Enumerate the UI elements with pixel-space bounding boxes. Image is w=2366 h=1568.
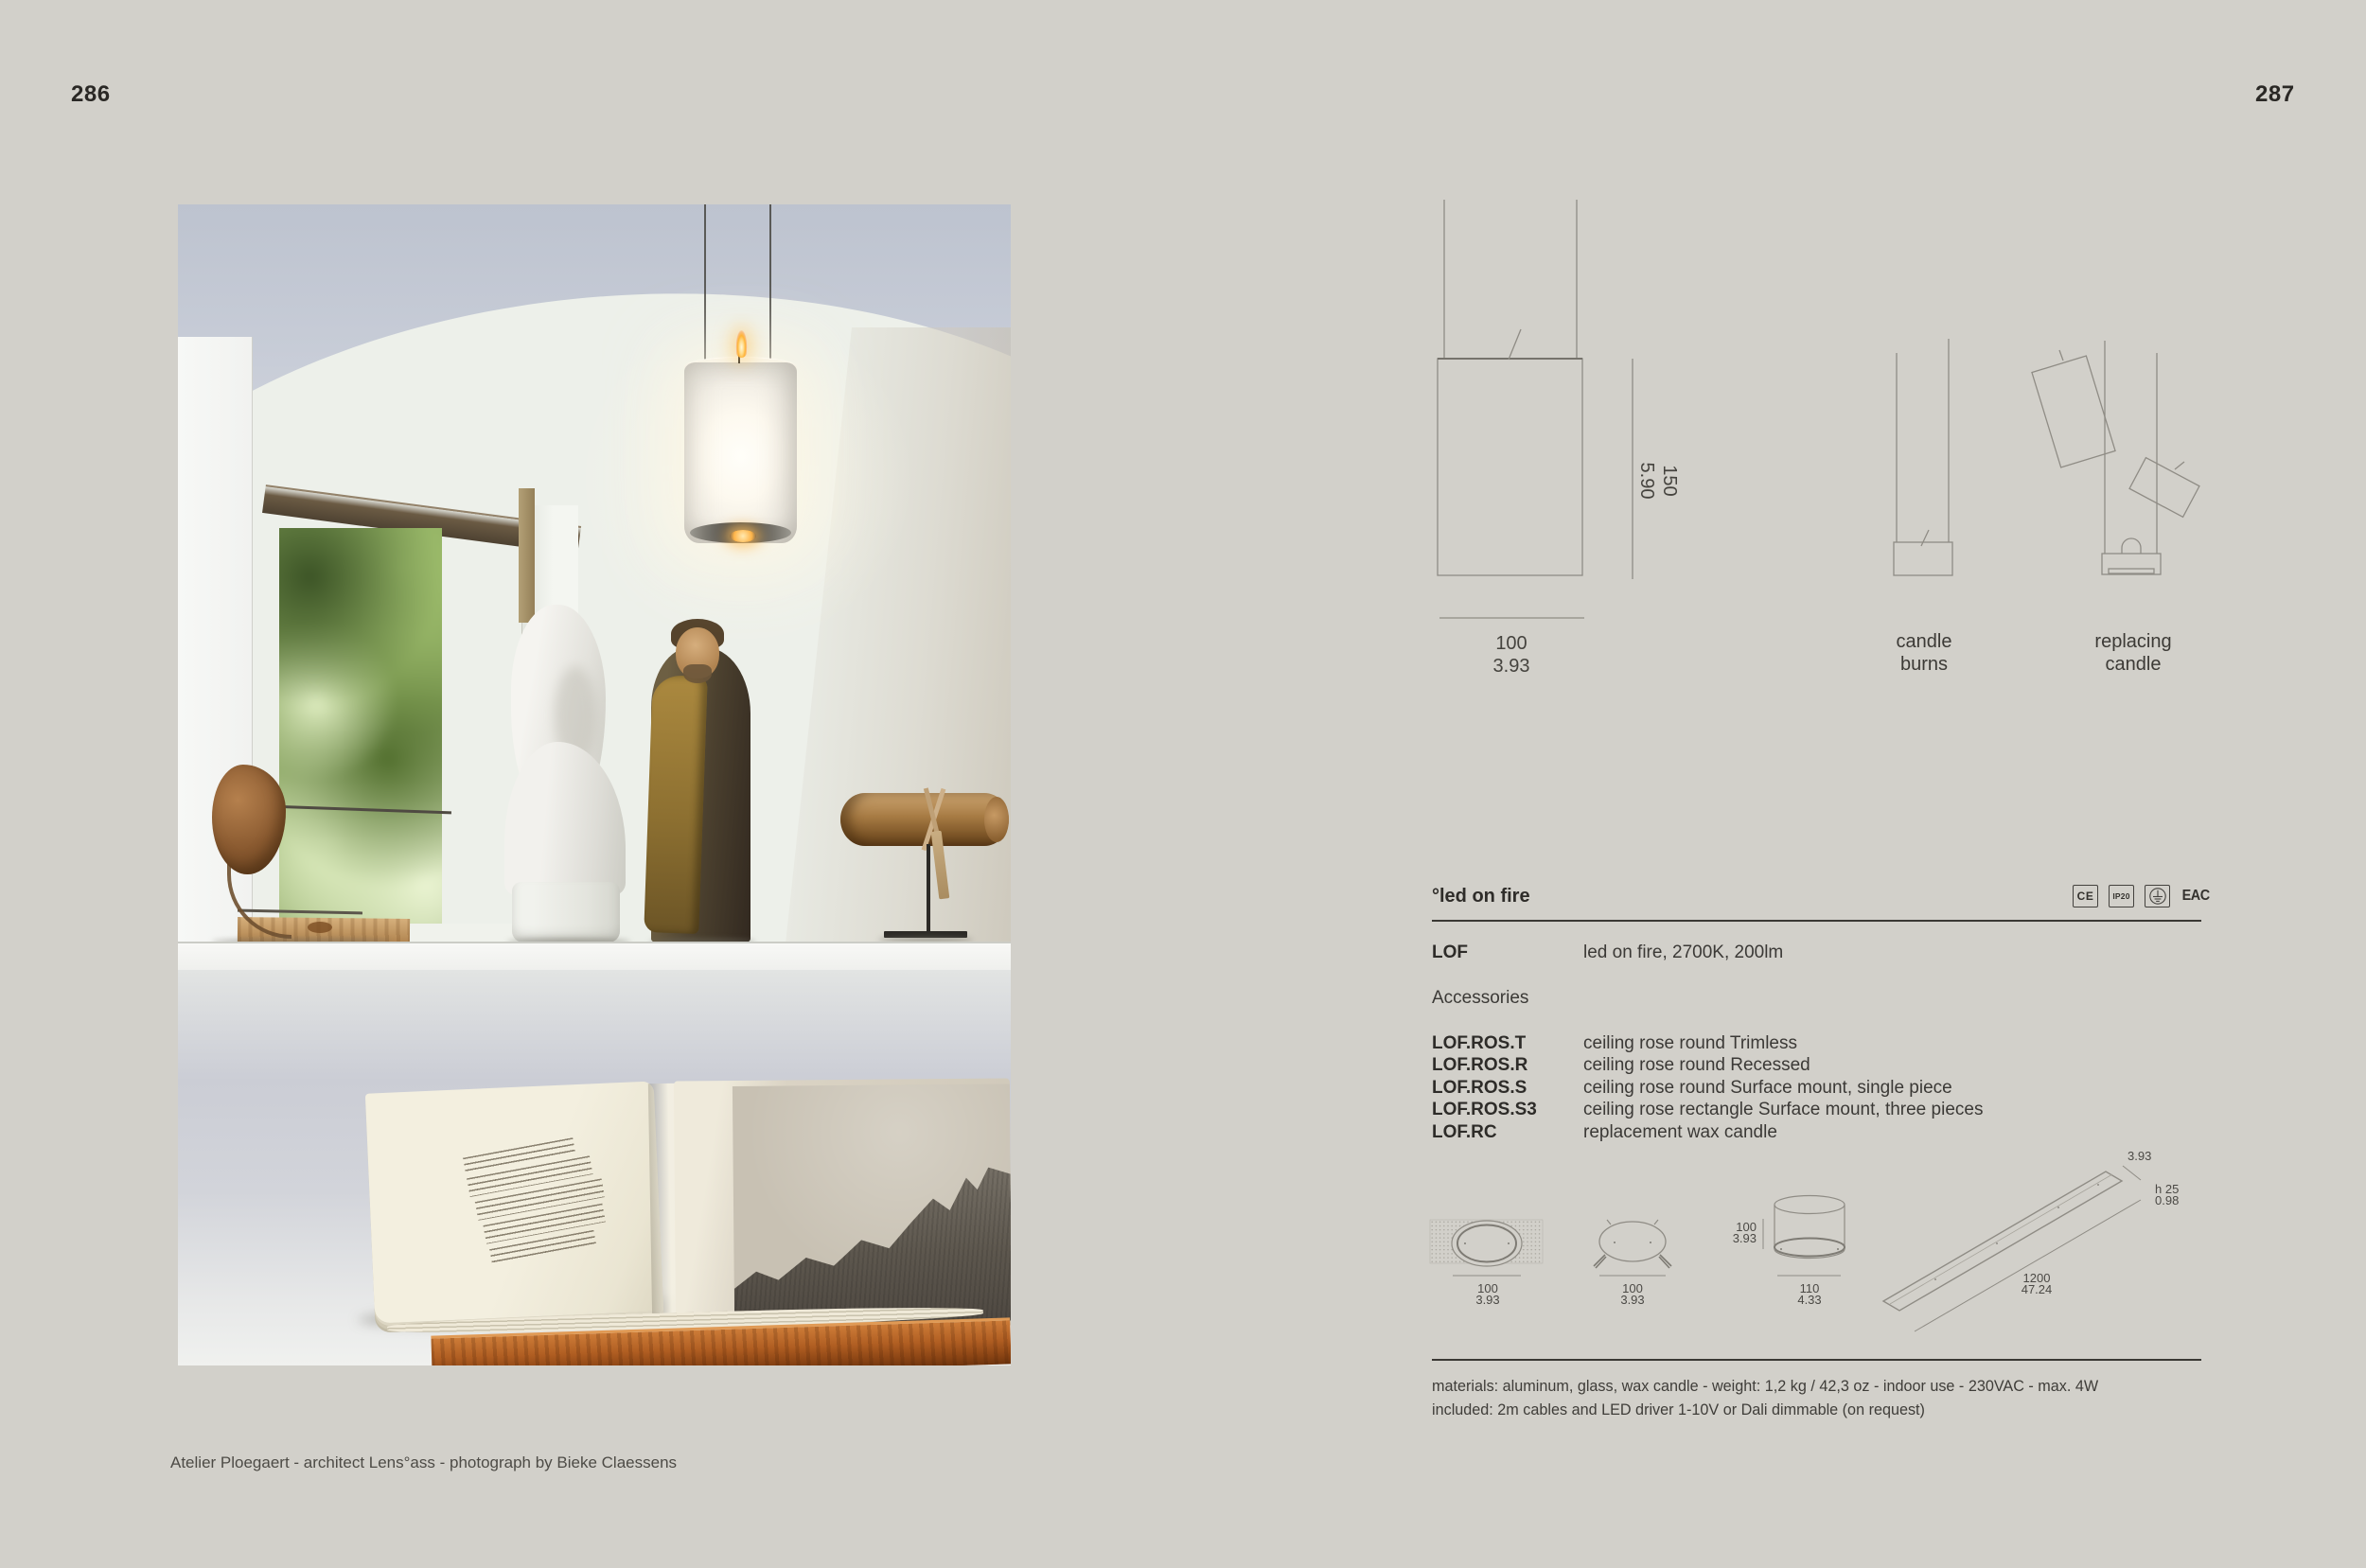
label-line: candle — [2072, 653, 2195, 676]
dimension-mm: 100 — [1464, 632, 1559, 655]
product-code: LOF — [1432, 943, 1583, 964]
replacing-candle-drawing — [2025, 331, 2215, 579]
label-line: candle — [1863, 630, 1986, 653]
accessory-row: LOF.RC replacement wax candle — [1432, 1122, 2201, 1144]
accessory-code: LOF.RC — [1432, 1122, 1583, 1144]
led-light-dot — [730, 530, 756, 542]
product-description: led on fire, 2700K, 200lm — [1583, 943, 1783, 964]
saint-beard — [683, 664, 712, 683]
dimension-in: 3.93 — [1599, 1295, 1666, 1306]
rose-trimless-drawing — [1427, 1217, 1546, 1281]
materials-line: materials: aluminum, glass, wax candle -… — [1432, 1378, 2098, 1396]
rose-recessed-dimension: 100 3.93 — [1599, 1283, 1666, 1306]
replacing-candle-label: replacing candle — [2072, 630, 2195, 676]
log-stand-rod — [927, 844, 930, 933]
dimension-mm: 150 — [1658, 435, 1681, 526]
dimension-in: 4.33 — [1776, 1295, 1843, 1306]
book-right-page — [674, 1078, 1011, 1329]
accessory-row: LOF.ROS.R ceiling rose round Recessed — [1432, 1055, 2201, 1077]
rose-rectangle-height-dimension: h 25 0.98 — [2155, 1184, 2193, 1207]
accessory-row: LOF.ROS.T ceiling rose round Trimless — [1432, 1033, 2201, 1055]
accessory-row: LOF.ROS.S3 ceiling rose rectangle Surfac… — [1432, 1100, 2201, 1121]
accessory-description: replacement wax candle — [1583, 1122, 1777, 1144]
pendant-cable-left — [704, 204, 706, 363]
pendant-width-dimension: 100 3.93 — [1464, 632, 1559, 678]
dimension-in: 47.24 — [1994, 1284, 2079, 1295]
candle-pendant-lamp — [684, 362, 797, 543]
eac-mark-icon: EAC — [2182, 888, 2210, 905]
drawing-hills — [733, 1150, 1011, 1323]
accessory-description: ceiling rose round Trimless — [1583, 1033, 1797, 1055]
rose-surface-drawing — [1704, 1190, 1850, 1285]
ground-icon — [2148, 887, 2167, 906]
book-left-page — [365, 1081, 663, 1323]
landscape-drawing — [733, 1084, 1011, 1323]
label-line: burns — [1863, 653, 1986, 676]
page-number-right: 287 — [2255, 81, 2295, 108]
rose-rectangle-width-dimension: 3.93 — [2128, 1151, 2165, 1162]
saint-golden-cloak — [644, 675, 707, 934]
window-glass — [279, 528, 442, 924]
included-line: included: 2m cables and LED driver 1-10V… — [1432, 1401, 1925, 1419]
interior-photograph — [178, 204, 1011, 1365]
pendant-height-dimension: 150 5.90 — [1639, 435, 1681, 526]
dimension-in: 3.93 — [1455, 1295, 1521, 1306]
ip20-rating-icon: IP20 — [2109, 885, 2134, 907]
log-end-cap — [984, 797, 1009, 842]
class-earth-icon — [2145, 885, 2170, 907]
rose-rectangle-length-dimension: 1200 47.24 — [1994, 1273, 2079, 1295]
accessory-code: LOF.ROS.S3 — [1432, 1100, 1583, 1121]
candle-burns-drawing — [1888, 331, 1964, 579]
accessories-list: LOF.ROS.T ceiling rose round Trimless LO… — [1432, 1033, 2201, 1144]
accessory-description: ceiling rose round Recessed — [1583, 1055, 1810, 1077]
foliage — [279, 528, 442, 924]
dimension-in: 0.98 — [2155, 1195, 2193, 1207]
plank-knot — [308, 922, 332, 933]
open-book — [362, 1061, 1011, 1354]
label-line: replacing — [2072, 630, 2195, 653]
accessory-code: LOF.ROS.R — [1432, 1055, 1583, 1077]
photo-caption: Atelier Ploegaert - architect Lens°ass -… — [170, 1453, 677, 1472]
dimension-in: 5.90 — [1635, 435, 1658, 526]
accessory-description: ceiling rose round Surface mount, single… — [1583, 1078, 1952, 1100]
shelf-ledge-face — [178, 943, 1011, 970]
rose-trimless-dimension: 100 3.93 — [1455, 1283, 1521, 1306]
certification-icons: CE IP20 EAC — [2073, 885, 2211, 907]
page-number-left: 286 — [71, 81, 111, 108]
accessory-code: LOF.ROS.T — [1432, 1033, 1583, 1055]
ce-mark-icon: CE — [2073, 885, 2098, 907]
dimension-in: 3.93 — [1464, 655, 1559, 678]
spec-divider-bottom — [1432, 1359, 2201, 1361]
accessory-description: ceiling rose rectangle Surface mount, th… — [1583, 1100, 1983, 1121]
rose-rectangle-drawing — [1879, 1147, 2191, 1341]
product-title: °led on fire — [1432, 886, 1530, 907]
rose-recessed-drawing — [1592, 1217, 1677, 1281]
window-frame-wood — [519, 488, 535, 623]
product-row: LOF led on fire, 2700K, 200lm — [1432, 943, 2201, 964]
spec-divider-top — [1432, 920, 2201, 922]
accessories-heading: Accessories — [1432, 988, 1528, 1009]
accessory-code: LOF.ROS.S — [1432, 1078, 1583, 1100]
marble-bust-base — [512, 882, 620, 943]
poem-text-block — [463, 1134, 614, 1271]
pendant-line-drawing — [1429, 194, 1656, 634]
accessory-row: LOF.ROS.S ceiling rose round Surface mou… — [1432, 1078, 2201, 1100]
rose-surface-width-dimension: 110 4.33 — [1776, 1283, 1843, 1306]
pendant-cable-right — [769, 204, 771, 360]
candle-burns-label: candle burns — [1863, 630, 1986, 676]
